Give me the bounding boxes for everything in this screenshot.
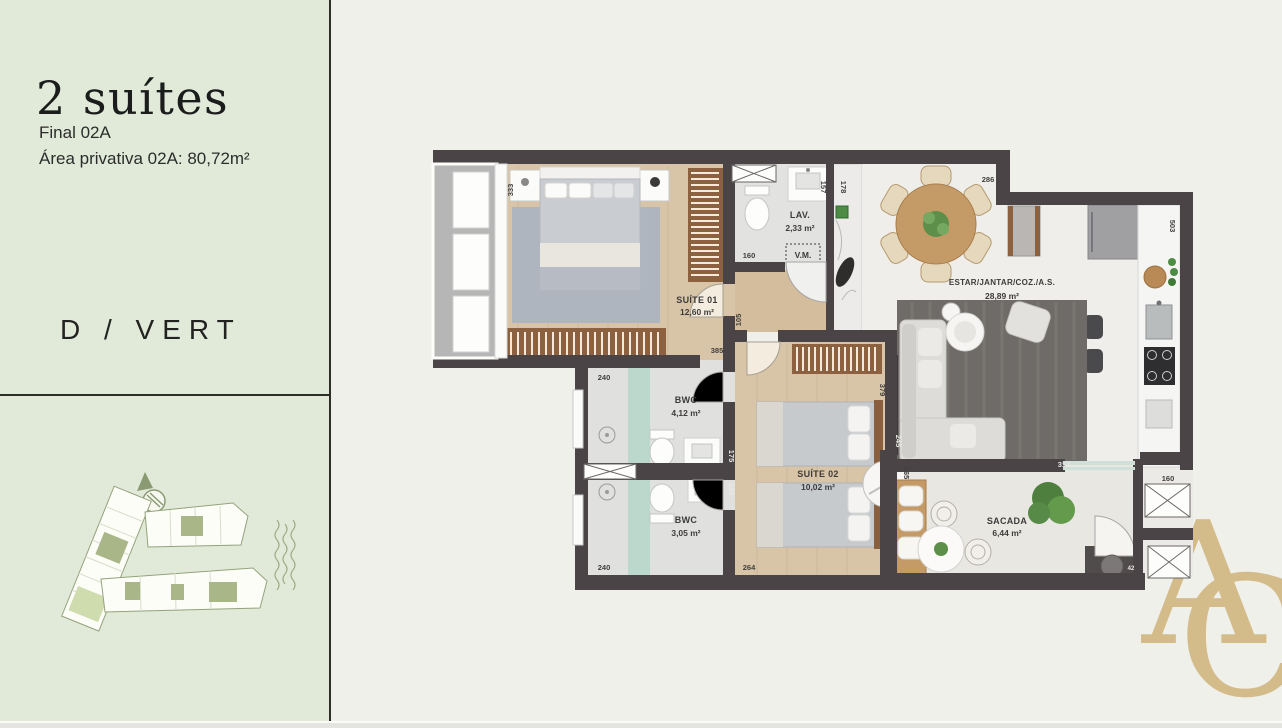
condenser-area [433, 164, 507, 358]
toilet [745, 198, 769, 230]
bwc1-shower-glass [628, 363, 650, 465]
room-label-suite2: SUÍTE 02 [797, 469, 838, 479]
page-title: 2 suítes [36, 71, 229, 125]
toilet [650, 438, 674, 466]
toilet [650, 484, 674, 512]
sidebar: 2 suítes Final 02A Área privativa 02A: 8… [0, 0, 330, 728]
svg-text:2,33 m²: 2,33 m² [785, 223, 814, 233]
ac-condenser [453, 296, 489, 352]
dim-label: 385 [711, 346, 724, 355]
svg-text:28,89 m²: 28,89 m² [985, 291, 1019, 301]
kitchen-sink [1146, 305, 1172, 339]
site-tower-bottom [101, 568, 267, 612]
dim-label: 160 [1162, 474, 1175, 483]
dim-label: 165 [902, 467, 911, 480]
dim-label: 317 [1058, 460, 1071, 469]
shaft-box [1145, 484, 1190, 517]
bwc2-shower-glass [628, 473, 650, 575]
dim-label: 157 [819, 181, 828, 194]
sidebar-border [329, 0, 331, 723]
fridge [1088, 205, 1138, 259]
room-label-sacada: SACADA [987, 516, 1028, 526]
wicker-chair [965, 539, 991, 565]
dim-label: 333 [506, 184, 515, 197]
unit-final-label: Final 02A [39, 120, 250, 146]
floor-plan: SUÍTE 01 12,60 m² LAV. 2,33 m² V.M. ESTA… [430, 145, 1200, 600]
dim-label: 240 [598, 563, 611, 572]
floorplan-page: 2 suítes Final 02A Área privativa 02A: 8… [0, 0, 1282, 728]
sidebar-divider [0, 394, 330, 396]
dim-label: 286 [982, 175, 995, 184]
shaft-box [732, 165, 776, 182]
wicker-chair [931, 501, 957, 527]
living-furniture [890, 300, 1087, 462]
ac-condenser [453, 234, 489, 290]
bwc1-window [573, 390, 583, 448]
dim-label: 175 [727, 450, 736, 463]
double-bed [540, 167, 640, 290]
dim-label: 245 [894, 435, 903, 448]
dim-label: 503 [1168, 220, 1177, 233]
cutting-board [1144, 266, 1166, 288]
svg-text:3,05 m²: 3,05 m² [671, 528, 700, 538]
shaft-box [584, 464, 636, 479]
single-bed-1 [757, 400, 883, 468]
dishwasher [1146, 400, 1172, 428]
room-label-suite1: SUÍTE 01 [676, 295, 717, 305]
dim-label: 130 [727, 483, 736, 496]
room-label-bwc2: BWC [675, 515, 698, 525]
dim-label: 379 [878, 384, 887, 397]
unit-meta: Final 02A Área privativa 02A: 80,72m² [39, 120, 250, 173]
svg-text:12,60 m²: 12,60 m² [680, 307, 714, 317]
svg-text:6,44 m²: 6,44 m² [992, 528, 1021, 538]
site-plan [25, 442, 310, 657]
room-label-bwc1: BWC [675, 395, 698, 405]
dim-label: 42 [1128, 566, 1135, 572]
water-waves-icon [275, 520, 295, 590]
dim-label: 240 [598, 373, 611, 382]
unit-area-label: Área privativa 02A: 80,72m² [39, 146, 250, 172]
dim-label: 264 [743, 563, 756, 572]
shaft-box [1148, 546, 1190, 578]
room-label-lav: LAV. [790, 210, 810, 220]
ac-condenser [453, 172, 489, 228]
sliding-glass-door [1063, 461, 1135, 465]
bottom-strip [0, 721, 1282, 728]
bwc2-window [573, 495, 583, 545]
variant-label: D / VERT [60, 314, 242, 346]
dim-label: 105 [734, 314, 743, 327]
room-label-estar: ESTAR/JANTAR/COZ./A.S. [949, 278, 1055, 287]
dim-label: 178 [839, 181, 848, 194]
vm-label: V.M. [795, 250, 812, 260]
svg-text:4,12 m²: 4,12 m² [671, 408, 700, 418]
dim-label: 160 [743, 251, 756, 260]
toilet-tank [745, 186, 769, 195]
svg-text:10,02 m²: 10,02 m² [801, 482, 835, 492]
